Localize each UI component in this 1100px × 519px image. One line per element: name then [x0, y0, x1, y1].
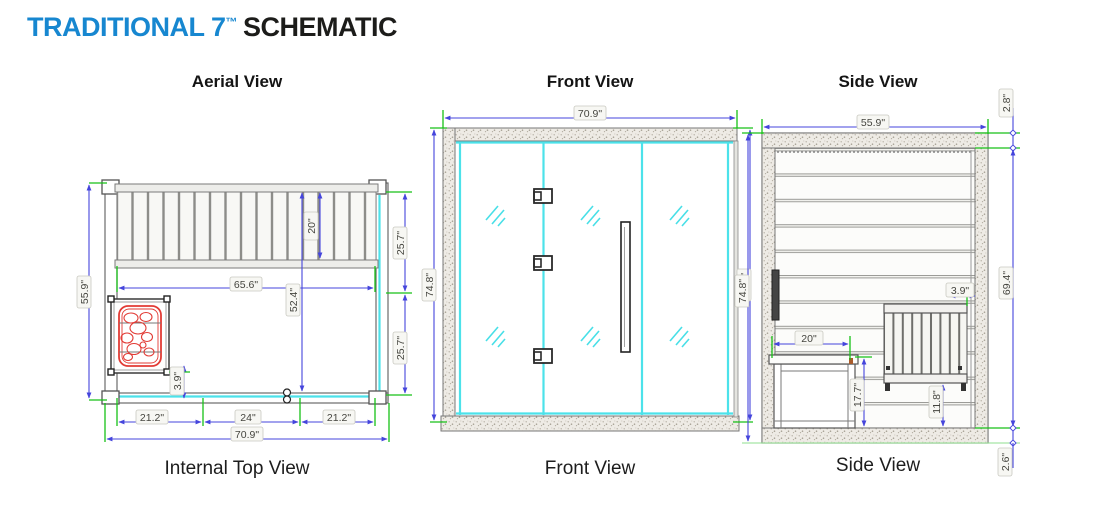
door-hinge-icon [534, 256, 552, 270]
dim-side-interior-height: 69.4" [999, 267, 1013, 299]
svg-text:11.8": 11.8" [931, 390, 943, 414]
svg-text:3.9": 3.9" [172, 372, 184, 391]
front-left-frame [443, 128, 455, 420]
front-door-handle [621, 222, 630, 352]
aerial-view-drawing: 55.9" 20" 52.4" 65.6" 25.7" 25.7" 3.9" 2… [77, 180, 412, 442]
dim-aerial-bench-depth: 20" [304, 212, 318, 240]
dim-side-floor-thickness: 2.6" [998, 448, 1012, 476]
dim-side-bench-width: 20" [795, 331, 823, 345]
svg-text:25.7": 25.7" [395, 336, 407, 360]
svg-text:65.6": 65.6" [234, 279, 258, 291]
side-bench [769, 355, 858, 428]
front-top-frame [443, 128, 737, 141]
side-roof [762, 133, 988, 148]
dim-aerial-interior-depth: 52.4" [286, 284, 300, 316]
svg-text:21.2": 21.2" [140, 412, 164, 424]
svg-text:21.2": 21.2" [327, 412, 351, 424]
door-hinge-icon [534, 349, 552, 363]
dim-side-overall-height: 74.8" [735, 275, 749, 307]
dim-aerial-bench-length: 65.6" [230, 277, 262, 291]
door-hinge-icon [534, 189, 552, 203]
svg-text:52.4": 52.4" [288, 288, 300, 312]
aerial-corner-post-br [369, 391, 386, 404]
dim-side-roof-thickness: 2.8" [999, 89, 1013, 117]
svg-text:2.6": 2.6" [1000, 453, 1012, 472]
dim-aerial-front-right: 21.2" [323, 410, 355, 424]
side-heater-guard [884, 304, 967, 391]
svg-text:74.8": 74.8" [424, 273, 436, 297]
dim-aerial-right-lower: 25.7" [393, 332, 407, 364]
svg-text:20": 20" [306, 218, 318, 234]
dim-aerial-front-left: 21.2" [136, 410, 168, 424]
front-bottom-frame [441, 416, 739, 431]
svg-text:25.7": 25.7" [395, 231, 407, 255]
svg-text:17.7": 17.7" [852, 383, 864, 407]
aerial-front-wall [105, 393, 388, 403]
side-view-drawing: 55.9" 74.8" 2.8" 69.4" 2.6" 3.9" 20" 17.… [735, 89, 1020, 476]
front-view-drawing: 70.9" 74.8" 74.8" [422, 106, 753, 431]
svg-text:74.8": 74.8" [737, 279, 749, 303]
front-glass-area [455, 141, 734, 416]
schematic-canvas: 55.9" 20" 52.4" 65.6" 25.7" 25.7" 3.9" 2… [0, 0, 1100, 519]
svg-text:24": 24" [240, 412, 256, 424]
side-floor [762, 428, 988, 443]
dim-side-heater-wall-gap: 3.9" [946, 283, 974, 297]
dim-side-bench-height: 17.7" [850, 379, 864, 411]
svg-text:3.9": 3.9" [951, 285, 970, 297]
dim-front-height-left: 74.8" [422, 269, 436, 301]
aerial-door-handle [284, 389, 291, 396]
aerial-bench-back-rail [115, 184, 378, 192]
dim-front-overall-width: 70.9" [574, 106, 606, 120]
aerial-right-wall [376, 183, 388, 400]
svg-text:55.9": 55.9" [79, 280, 91, 304]
side-door-handle [772, 270, 779, 320]
dim-aerial-door: 24" [235, 410, 261, 424]
dim-aerial-right-upper: 25.7" [393, 227, 407, 259]
aerial-door-handle [284, 396, 291, 403]
aerial-bench-front-rail [115, 260, 378, 268]
aerial-bench-slats [117, 192, 376, 260]
dim-aerial-overall-width: 70.9" [231, 427, 263, 441]
svg-text:2.8": 2.8" [1001, 94, 1013, 113]
dim-side-overall-depth: 55.9" [857, 115, 889, 129]
dim-side-heater-stand-height: 11.8" [929, 386, 943, 418]
svg-text:55.9": 55.9" [861, 117, 885, 129]
dim-aerial-overall-depth: 55.9" [77, 276, 91, 308]
dim-aerial-heater-clearance: 3.9" [170, 367, 184, 395]
side-back-wall [975, 148, 988, 428]
svg-text:20": 20" [801, 333, 817, 345]
svg-text:70.9": 70.9" [578, 108, 602, 120]
svg-text:69.4": 69.4" [1001, 271, 1013, 295]
aerial-heater [108, 296, 170, 375]
svg-text:70.9": 70.9" [235, 429, 259, 441]
